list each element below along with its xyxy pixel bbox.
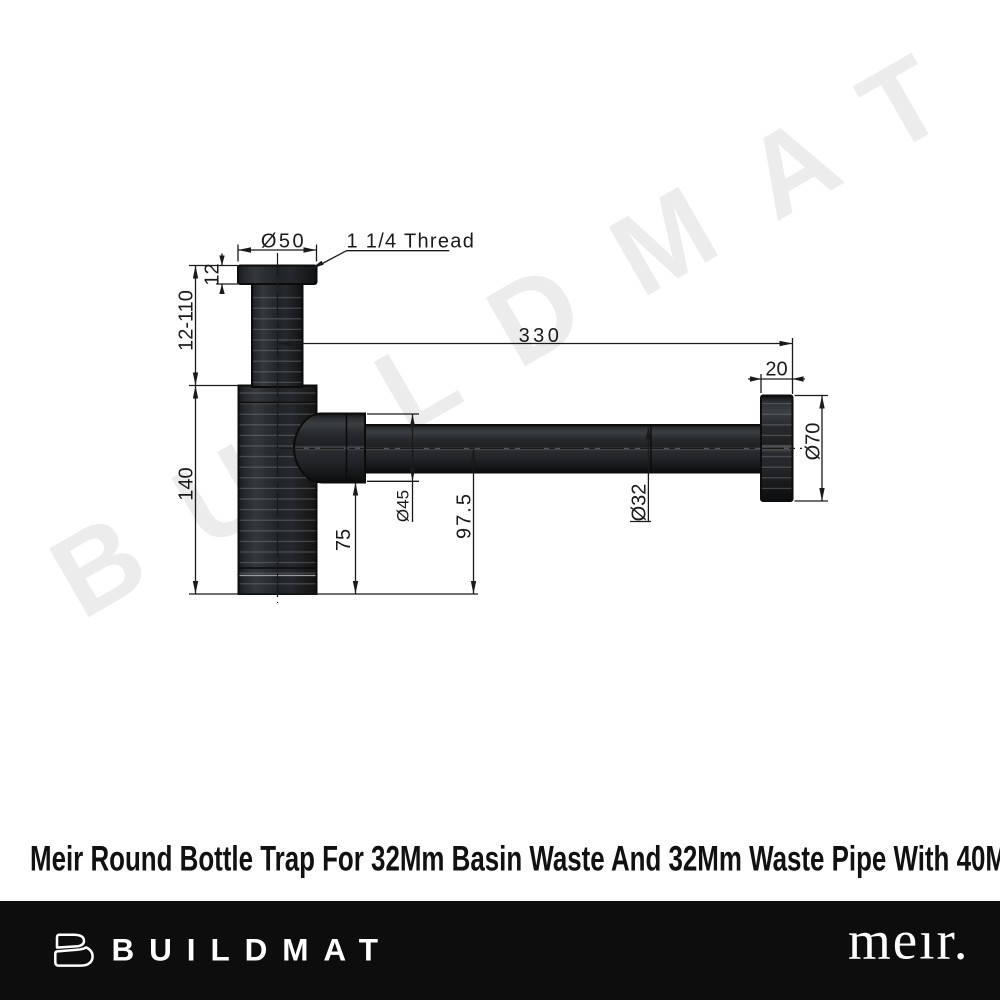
svg-text:12-110: 12-110 <box>176 290 198 351</box>
svg-text:BUILDMAT: BUILDMAT <box>112 932 393 968</box>
svg-text:330: 330 <box>519 325 563 347</box>
svg-text:Ø70: Ø70 <box>803 423 825 461</box>
svg-text:12: 12 <box>202 263 224 285</box>
svg-text:1 1/4 Thread: 1 1/4 Thread <box>347 231 476 253</box>
svg-text:75: 75 <box>333 529 355 551</box>
svg-text:Ø32: Ø32 <box>629 484 651 522</box>
svg-text:Ø50: Ø50 <box>261 231 306 253</box>
svg-text:97.5: 97.5 <box>454 492 476 539</box>
svg-text:20: 20 <box>765 359 787 381</box>
svg-text:Meir Round Bottle Trap For 32M: Meir Round Bottle Trap For 32Mm Basin Wa… <box>30 840 1000 879</box>
svg-text:Ø45: Ø45 <box>394 490 413 522</box>
svg-text:140: 140 <box>176 467 198 500</box>
svg-text:meır.: meır. <box>848 910 970 971</box>
